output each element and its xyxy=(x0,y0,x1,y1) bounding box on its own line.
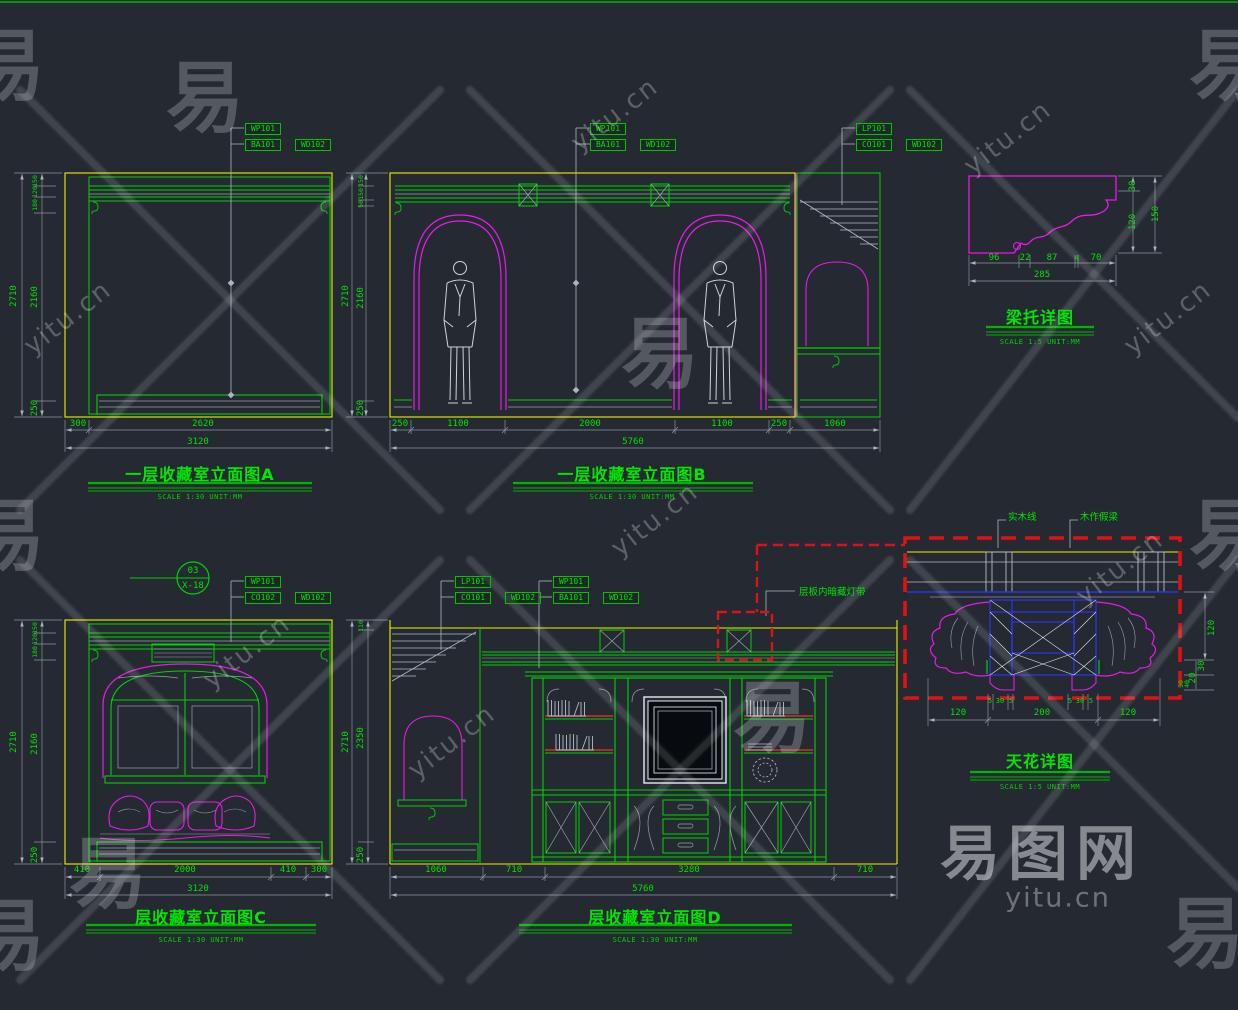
elevation-a-dims xyxy=(14,173,332,491)
elevation-b-dims xyxy=(346,173,880,491)
cad-sheet: 2710 150 120 180 2160 250 300 2620 3120 … xyxy=(0,0,1238,1010)
elevation-d xyxy=(390,545,905,864)
elevation-d-dims xyxy=(346,620,897,933)
cad-linework xyxy=(0,0,1238,1010)
watermark-lines xyxy=(20,90,1238,980)
